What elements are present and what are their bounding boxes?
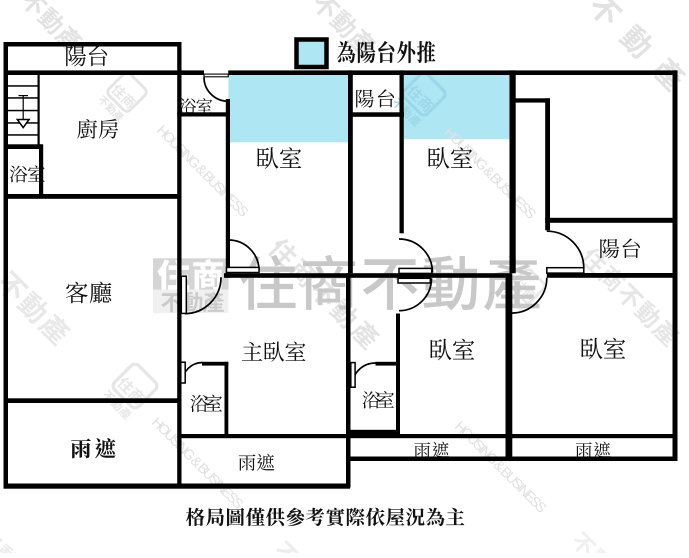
svg-text:HOUSING & BUSINESS: HOUSING & BUSINESS <box>149 414 247 512</box>
svg-text:HOUSING & BUSINESS: HOUSING & BUSINESS <box>452 418 550 516</box>
